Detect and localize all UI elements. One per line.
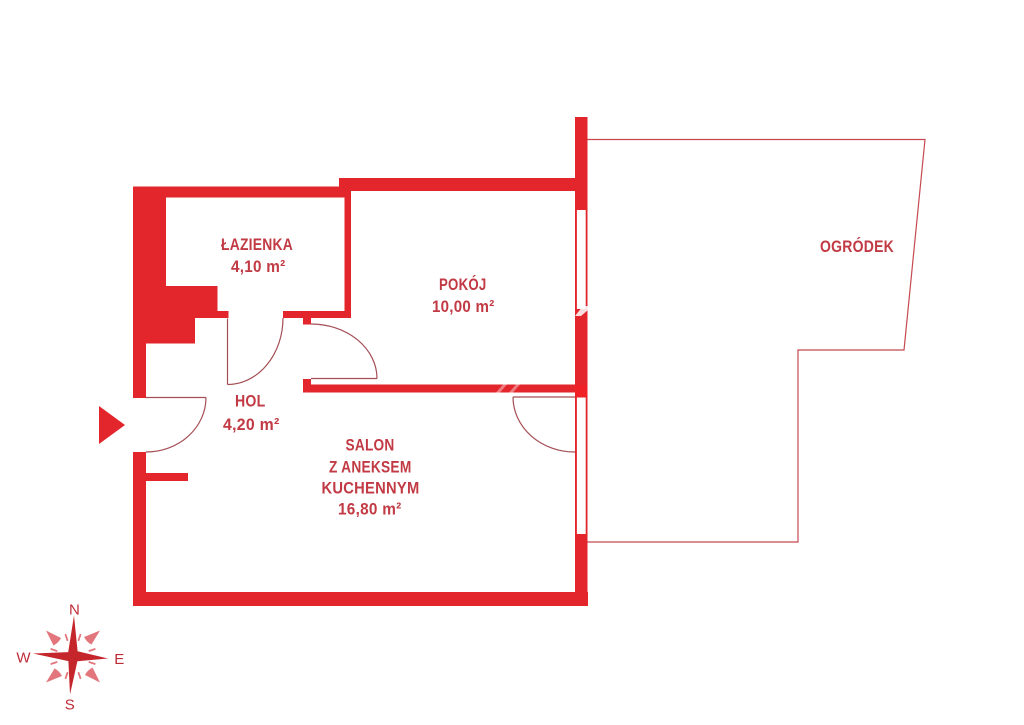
svg-text:KUCHENNYM: KUCHENNYM [322,479,420,498]
svg-text:N: N [69,602,80,619]
svg-text:Z ANEKSEM: Z ANEKSEM [329,458,412,477]
svg-text:POKÓJ: POKÓJ [439,275,487,294]
svg-text:10,00 m²: 10,00 m² [432,297,495,316]
svg-text:4,10 m²: 4,10 m² [231,257,286,276]
svg-text:OGRÓDEK: OGRÓDEK [820,237,894,256]
svg-text:HOL: HOL [235,392,266,411]
svg-text:S: S [65,697,75,714]
svg-text:16,80 m²: 16,80 m² [338,500,402,519]
svg-text:SALON: SALON [346,436,395,455]
svg-text:ŁAZIENKA: ŁAZIENKA [221,235,293,254]
svg-text:4,20 m²: 4,20 m² [223,415,280,434]
svg-text:W: W [16,650,31,667]
svg-text:E: E [114,651,124,668]
